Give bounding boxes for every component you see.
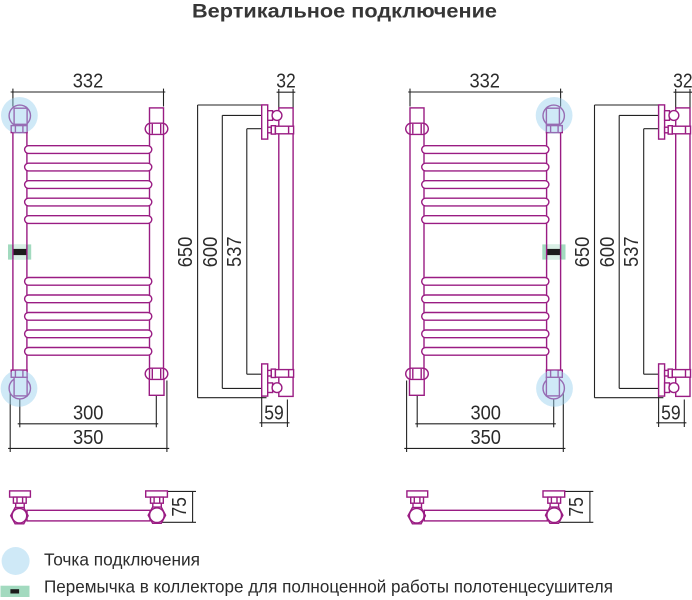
svg-text:Точка подключения: Точка подключения [44,550,200,570]
svg-text:32: 32 [276,70,296,92]
svg-text:332: 332 [73,70,104,92]
svg-text:300: 300 [470,403,501,425]
svg-text:350: 350 [470,427,501,449]
svg-text:75: 75 [169,497,191,517]
svg-text:300: 300 [73,403,104,425]
svg-text:59: 59 [264,403,284,425]
svg-text:350: 350 [73,427,104,449]
svg-text:600: 600 [200,237,222,268]
svg-text:332: 332 [469,70,500,92]
svg-text:Вертикальное подключение: Вертикальное подключение [192,0,497,22]
svg-text:Перемычка в коллекторе для пол: Перемычка в коллекторе для полноценной р… [44,577,613,597]
svg-text:650: 650 [175,237,197,268]
svg-text:537: 537 [224,236,246,267]
